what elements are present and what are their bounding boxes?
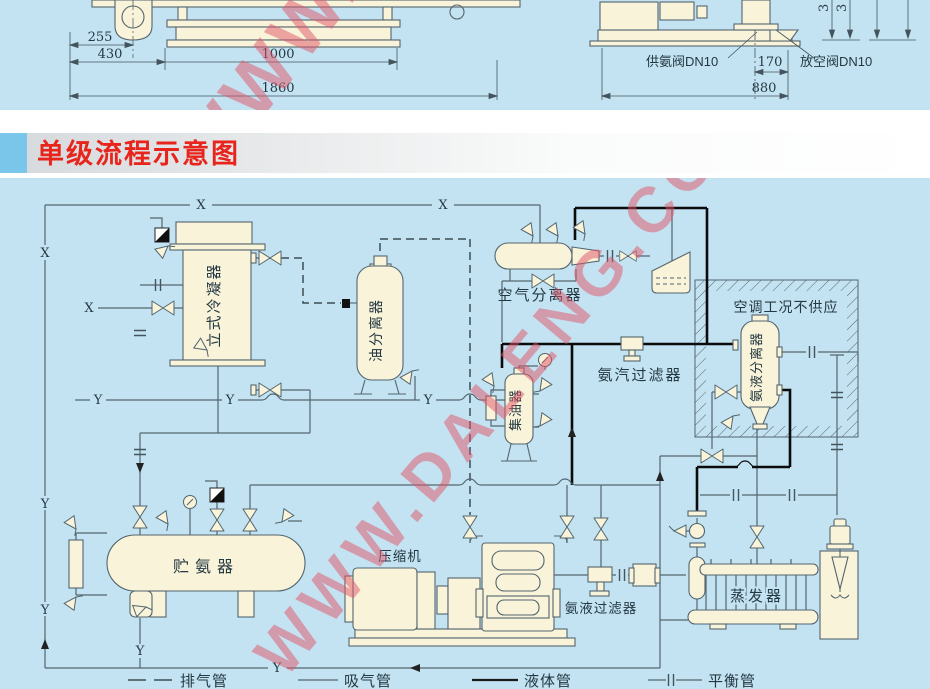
marker-y: Y — [93, 393, 103, 408]
flow-diagram-section: 立式冷凝器 油分离器 空气分离器 空调工况不供应 氨汽过滤器 氨液分离器 集油器… — [0, 178, 930, 689]
agitator-motor — [830, 526, 850, 544]
engineering-drawings-svg: 255 430 1000 1860 — [0, 0, 930, 110]
evap-bottom-header — [688, 610, 818, 624]
pressure-controller-icon — [155, 228, 169, 242]
label-ac-condition-note: 空调工况不供应 — [734, 299, 839, 315]
oil-drain-pot — [130, 591, 152, 617]
level-gauge-column — [69, 540, 83, 588]
evap-top-header — [700, 564, 818, 575]
dim-170: 170 — [758, 55, 783, 70]
legend-discharge-pipe: 排气管 — [180, 673, 228, 689]
label-ammonia-vapor-filter: 氨汽过滤器 — [597, 367, 682, 384]
section-title: 单级流程示意图 — [27, 133, 930, 171]
banner-bar: 单级流程示意图 — [27, 133, 930, 173]
dim-880: 880 — [752, 81, 777, 96]
marker-x: X — [196, 198, 206, 213]
marker-y: Y — [225, 393, 235, 408]
section-banner: 单级流程示意图 — [0, 110, 930, 178]
marker-y: Y — [40, 603, 50, 618]
drain-vessel — [689, 557, 705, 599]
legend-liquid-pipe: 液体管 — [524, 673, 572, 689]
vapor-filter-body — [621, 337, 643, 350]
ammonia-vapor-filter — [621, 337, 643, 361]
engineering-drawings-section: 255 430 1000 1860 — [0, 0, 930, 110]
marker-y: Y — [135, 644, 145, 659]
supply-valve-label: 供氨阀DN10 — [646, 54, 718, 69]
pressure-controller-icon — [210, 488, 224, 502]
flow-diagram-svg: 立式冷凝器 油分离器 空气分离器 空调工况不供应 氨汽过滤器 氨液分离器 集油器… — [0, 178, 930, 689]
label-oil-separator: 油分离器 — [368, 298, 384, 362]
legend-balance-pipe: 平衡管 — [708, 673, 756, 689]
dim-430: 430 — [98, 47, 123, 62]
label-evaporator: 蒸发器 — [730, 588, 784, 605]
vertical-dim-a: 3 — [817, 4, 832, 12]
marker-x: X — [84, 301, 94, 316]
float-valve-body — [690, 524, 705, 539]
label-ammonia-liquid-separator: 氨液分离器 — [749, 332, 764, 402]
vertical-dim-b: 3 — [835, 4, 850, 12]
label-ammonia-receiver: 贮氨器 — [173, 558, 239, 576]
vent-valve-label: 放空阀DN10 — [800, 54, 872, 69]
catalog-page: 255 430 1000 1860 — [0, 0, 930, 689]
marker-x: X — [40, 246, 50, 261]
marker-y: Y — [40, 497, 50, 512]
marker-x: X — [438, 198, 448, 213]
label-ammonia-liquid-filter: 氨液过滤器 — [565, 601, 638, 616]
legend-suction-pipe: 吸气管 — [344, 673, 392, 689]
label-vertical-condenser: 立式冷凝器 — [206, 262, 223, 347]
dim-255: 255 — [88, 30, 113, 45]
marker-y: Y — [423, 393, 433, 408]
banner-accent-square — [0, 133, 27, 173]
filter-cross-body — [588, 567, 612, 582]
